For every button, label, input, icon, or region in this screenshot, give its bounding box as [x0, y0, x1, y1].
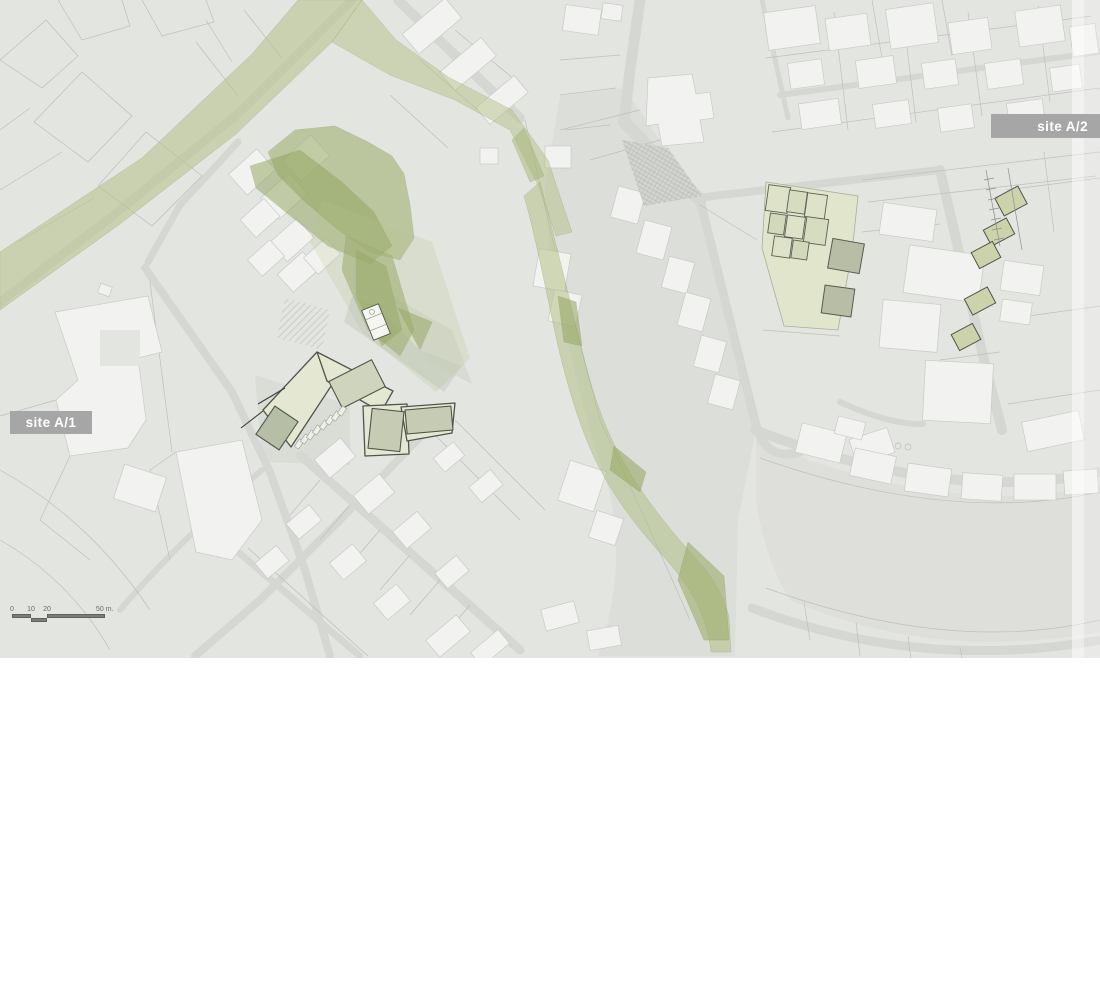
page-edge-strip: [1084, 0, 1100, 658]
scale-segment-1: [12, 614, 31, 618]
scale-segment-3: [47, 614, 105, 618]
scale-tick-0: 0: [10, 606, 14, 613]
scale-tick-50: 50 m.: [96, 606, 114, 613]
scale-tick-10: 10: [27, 606, 35, 613]
site-plan-page: site A/1 site A/2 0 10 20 50 m.: [0, 0, 1100, 1000]
site-plan-map: site A/1 site A/2 0 10 20 50 m.: [0, 0, 1100, 658]
scale-segment-2: [31, 618, 47, 622]
scale-tick-20: 20: [43, 606, 51, 613]
page-fold-highlight: [1072, 0, 1084, 658]
site-a1-label: site A/1: [10, 411, 92, 434]
site-a2-label: site A/2: [991, 114, 1100, 138]
site-plan-drawing: [0, 0, 1100, 658]
scale-bar: 0 10 20 50 m.: [8, 600, 118, 628]
blank-page-area: [0, 658, 1100, 1000]
